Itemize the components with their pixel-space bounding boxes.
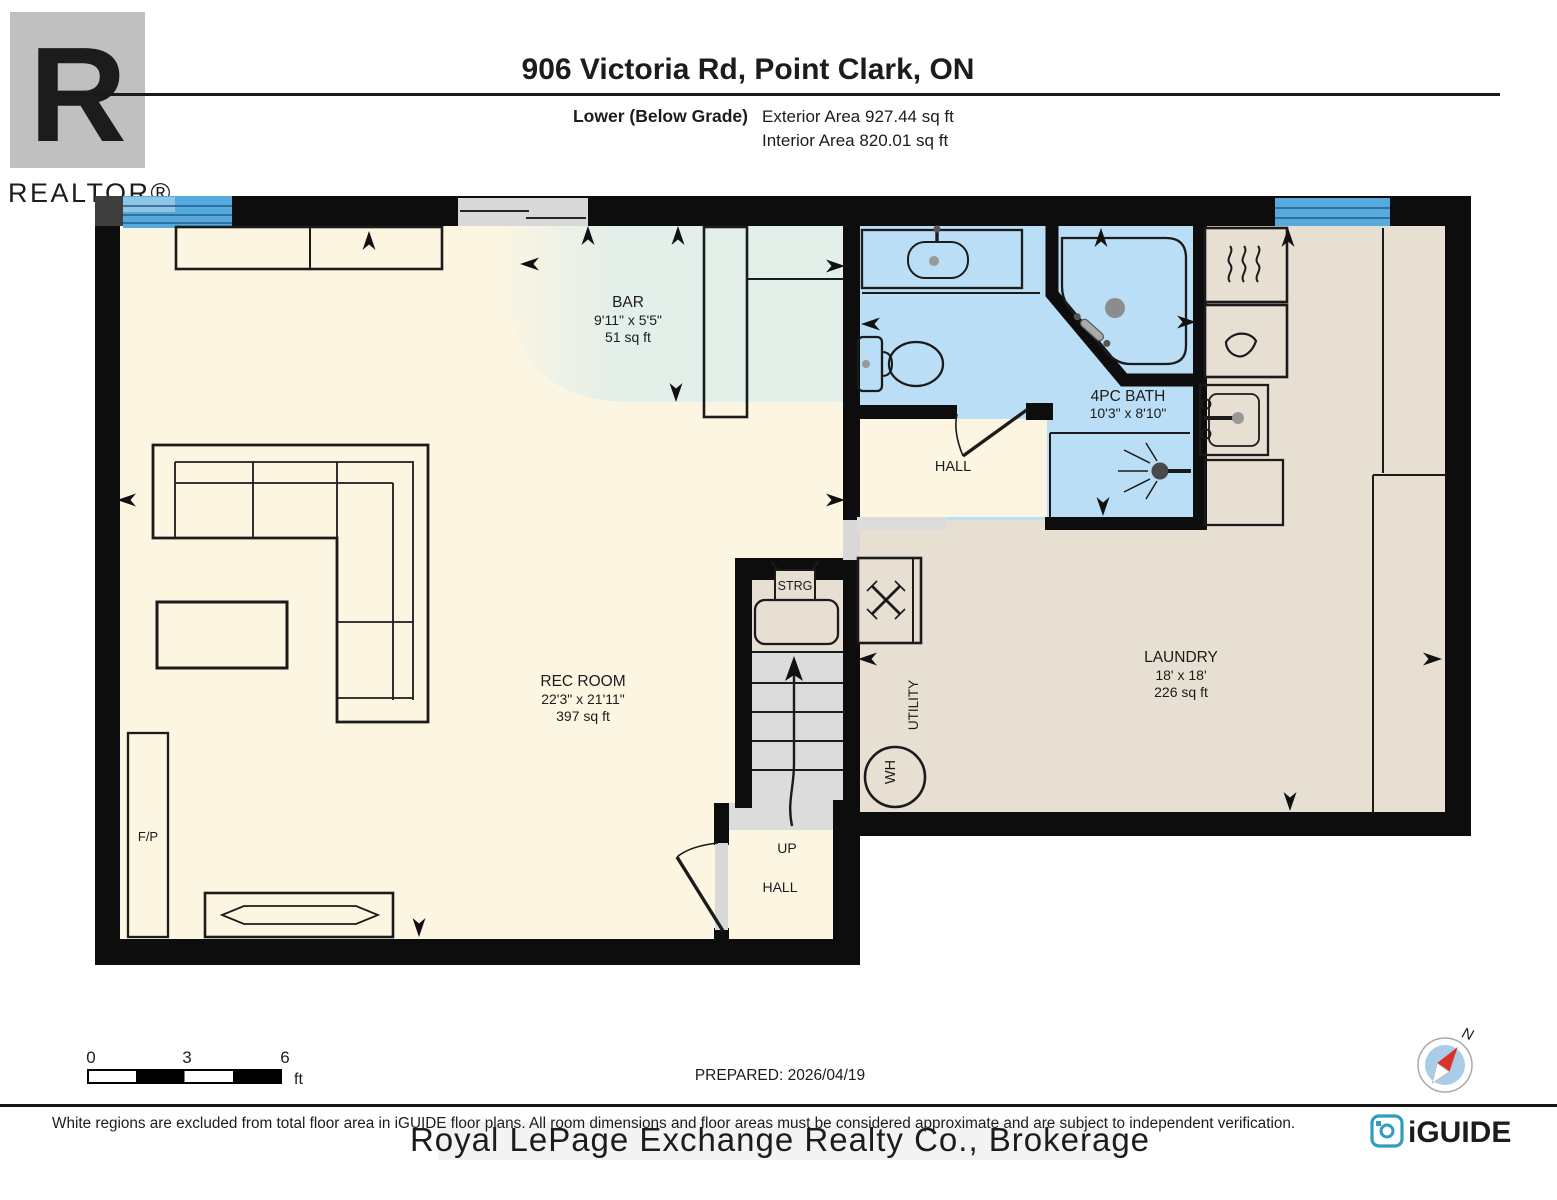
floorplan-canvas: R REALTOR® 906 Victoria Rd, Point Clark,… <box>0 0 1557 1200</box>
laundry-label: LAUNDRY <box>1144 649 1218 666</box>
scale-bar: 0 3 6 ft <box>86 1048 303 1088</box>
scale-unit: ft <box>294 1071 303 1088</box>
opening-recroom-hall <box>715 843 728 930</box>
compass-icon: N <box>1418 1025 1475 1092</box>
washer-icon <box>1205 305 1287 377</box>
bar-area-label: 51 sq ft <box>605 329 651 345</box>
bar-area <box>508 226 843 402</box>
bar-dims: 9'11" x 5'5" <box>594 312 662 328</box>
iguide-camera-icon <box>1372 1116 1402 1146</box>
iguide-label: iGUIDE <box>1408 1116 1511 1149</box>
lower-hall-label: HALL <box>762 879 797 895</box>
opening-hall-laundry <box>857 517 947 530</box>
bar-walkout-opening <box>458 198 588 226</box>
disclaimer-text: White regions are excluded from total fl… <box>52 1115 1295 1132</box>
scale-tick-6: 6 <box>280 1048 289 1067</box>
level-label: Lower (Below Grade) <box>573 106 748 126</box>
realtor-logo: R REALTOR® <box>8 12 173 208</box>
fireplace-label: F/P <box>138 829 158 844</box>
window-laundry <box>1275 198 1390 226</box>
laundry-dims: 18' x 18' <box>1155 667 1206 683</box>
rec-room-label: REC ROOM <box>540 673 625 690</box>
water-heater-label: WH <box>883 760 899 784</box>
footer-divider <box>0 1104 1557 1107</box>
header: 906 Victoria Rd, Point Clark, ON Lower (… <box>55 53 1500 150</box>
iguide-logo: iGUIDE <box>1372 1116 1511 1149</box>
floorplan-page: R REALTOR® 906 Victoria Rd, Point Clark,… <box>0 0 1557 1200</box>
scale-tick-3: 3 <box>182 1048 191 1067</box>
up-label: UP <box>777 840 796 856</box>
bar-label: BAR <box>612 294 644 311</box>
hall-label: HALL <box>935 459 971 475</box>
laundry-area-main <box>855 520 1445 812</box>
rec-room-area-label: 397 sq ft <box>556 708 610 724</box>
window-rec-room <box>123 196 232 228</box>
compass-north-label: N <box>1460 1025 1476 1045</box>
floor-plan: BAR 9'11" x 5'5" 51 sq ft REC ROOM 22'3"… <box>95 196 1471 965</box>
dryer-icon <box>1205 228 1287 302</box>
storage-label: STRG <box>778 579 813 593</box>
bath-dims: 10'3" x 8'10" <box>1090 405 1167 421</box>
furnace-icon <box>858 558 921 643</box>
wall-corner <box>95 196 123 226</box>
interior-area: Interior Area 820.01 sq ft <box>762 131 948 150</box>
bath-label: 4PC BATH <box>1091 388 1166 405</box>
prepared-date: PREPARED: 2026/04/19 <box>695 1067 865 1084</box>
header-divider <box>55 93 1500 96</box>
rec-room-dims: 22'3" x 21'11" <box>541 691 625 707</box>
exterior-area: Exterior Area 927.44 sq ft <box>762 107 954 126</box>
laundry-area-label: 226 sq ft <box>1154 684 1208 700</box>
scale-tick-0: 0 <box>86 1048 95 1067</box>
utility-label: UTILITY <box>906 680 921 730</box>
page-title: 906 Victoria Rd, Point Clark, ON <box>522 53 975 86</box>
